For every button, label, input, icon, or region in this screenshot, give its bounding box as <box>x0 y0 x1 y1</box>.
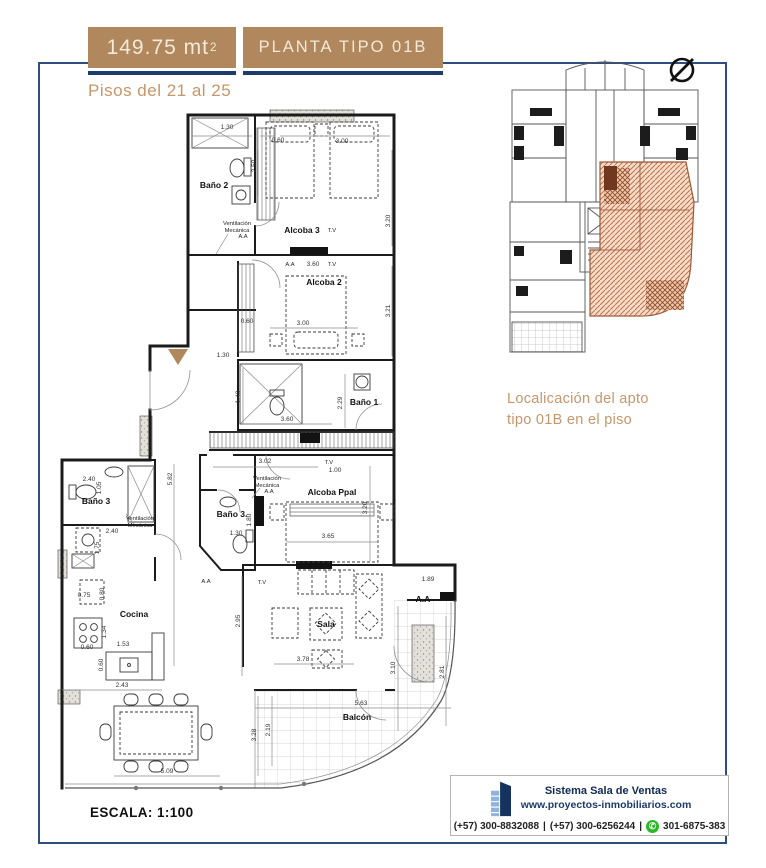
dim: 1.05 <box>96 481 103 494</box>
dim: 2.19 <box>265 723 272 736</box>
scale-label: ESCALA: 1:100 <box>90 805 193 820</box>
contact-box: Sistema Sala de Ventas www.proyectos-inm… <box>450 775 729 836</box>
plan-type-underline <box>243 71 443 75</box>
aa-tag: A.A <box>201 579 210 585</box>
phone-2: (+57) 300-6256244 <box>550 821 635 832</box>
room-label-bano3-izq: Baño 3 <box>82 496 111 506</box>
dim: 3.20 <box>385 214 392 227</box>
dim: 3.10 <box>390 661 397 674</box>
north-icon <box>671 59 693 81</box>
room-label-bano1: Baño 1 <box>350 397 379 407</box>
key-plan <box>500 50 715 360</box>
aa-tag: A.A <box>264 489 273 495</box>
dim: 3.21 <box>385 304 392 317</box>
tv-tag: T.V <box>328 228 337 234</box>
floor-plan: 1.30 2.50 0.60 3.00 3.20 3.60 3.21 0.60 … <box>56 106 466 806</box>
plan-type-label: PLANTA TIPO 01B <box>259 38 428 57</box>
dim: 3.60 <box>281 416 294 423</box>
dim: 2.40 <box>106 528 119 535</box>
vent-notes: Ventilación Mecánica Ventilación Mecánic… <box>126 221 281 529</box>
dim: 0.60 <box>272 137 285 144</box>
dim: 1.30 <box>217 352 230 359</box>
area-underline <box>88 71 236 75</box>
frame-top-left <box>38 62 88 64</box>
caption-line1: Localicación del apto <box>507 389 649 410</box>
room-label-balcon: Balcón <box>343 712 371 722</box>
phone-1: (+57) 300-8832088 <box>454 821 539 832</box>
company-logo-icon <box>488 778 514 818</box>
website-url: www.proyectos-inmobiliarios.com <box>521 798 692 812</box>
phone-line: (+57) 300-8832088 | (+57) 300-6256244 | … <box>454 820 726 833</box>
area-badge: 149.75 mt2 <box>88 27 236 68</box>
dim: 1.75 <box>94 541 101 554</box>
dim: 2.29 <box>337 396 344 409</box>
brand-name: Sistema Sala de Ventas <box>545 784 667 798</box>
dim: 3.65 <box>322 533 335 540</box>
dim: 1.34 <box>101 625 108 638</box>
dim: 1.40 <box>235 390 242 403</box>
dim: 0.80 <box>99 587 106 600</box>
vent-note: Mecánica <box>255 483 281 489</box>
room-label-alcoba2: Alcoba 2 <box>306 277 342 287</box>
dim: 3.28 <box>251 728 258 741</box>
door-arcs <box>150 202 430 720</box>
dim: 2.95 <box>235 614 242 627</box>
dim: 3.00 <box>336 138 349 145</box>
dim: 2.40 <box>83 476 96 483</box>
room-label-bano3-mid: Baño 3. <box>217 509 248 519</box>
dim: 3.78 <box>297 656 310 663</box>
dim: 1.89 <box>422 576 435 583</box>
floor-plan-svg: 1.30 2.50 0.60 3.00 3.20 3.60 3.21 0.60 … <box>56 106 466 806</box>
dim: 2.43 <box>116 682 129 689</box>
aa-tag: A.A <box>285 262 294 268</box>
area-value: 149.75 mt <box>107 36 209 60</box>
room-label-cocina: Cocina <box>120 609 149 619</box>
dining-set <box>100 694 212 772</box>
key-plan-caption: Localicación del apto tipo 01B en el pis… <box>507 389 649 431</box>
dim: 3.20 <box>362 501 369 514</box>
floors-label: Pisos del 21 al 25 <box>88 81 231 101</box>
dim: 0.60 <box>81 644 94 651</box>
caption-line2: tipo 01B en el piso <box>507 410 649 431</box>
dim: 0.60 <box>241 318 254 325</box>
dim: 3.00 <box>297 320 310 327</box>
dim: 5.09 <box>161 768 174 775</box>
whatsapp-icon: ✆ <box>646 820 659 833</box>
vent-note: Mecánica <box>128 523 154 529</box>
plan-type-badge: PLANTA TIPO 01B <box>243 27 443 68</box>
dim: 3.60 <box>307 261 320 268</box>
room-label-alcoba-ppal: Alcoba Ppal <box>308 487 357 497</box>
flyer-page: 149.75 mt2 PLANTA TIPO 01B Pisos del 21 … <box>0 0 766 868</box>
dim: 1.30 <box>230 530 243 537</box>
separator: | <box>543 821 546 832</box>
room-label-alcoba3: Alcoba 3 <box>284 225 320 235</box>
dim: 2.50 <box>251 159 258 172</box>
frame-right <box>725 62 727 844</box>
aa-tag: A.A <box>238 234 247 240</box>
entrance-marker <box>168 349 188 365</box>
dim: 1.00 <box>329 467 342 474</box>
vent-note: Mecánica <box>225 228 251 234</box>
dim: 1.53 <box>117 641 130 648</box>
dim: 0.60 <box>98 658 105 671</box>
room-label-aa: A.A <box>416 594 431 604</box>
wall-columns <box>58 110 434 704</box>
vent-note: Ventilación <box>253 476 281 482</box>
room-label-bano2: Baño 2 <box>200 180 229 190</box>
tv-tag: T.V <box>325 460 334 466</box>
dim: 0.75 <box>78 592 91 599</box>
separator: | <box>639 821 642 832</box>
dim: 5.63 <box>355 700 368 707</box>
key-plan-highlight <box>590 162 694 316</box>
vent-note: Ventilación <box>126 516 154 522</box>
phone-3: 301-6875-383 <box>663 821 725 832</box>
vent-note: Ventilación <box>223 221 251 227</box>
dim: 3.02 <box>259 458 272 465</box>
dim: 2.81 <box>439 665 446 678</box>
frame-bottom <box>38 842 727 844</box>
tv-tag: T.V <box>328 262 337 268</box>
tv-tag: T.V <box>258 580 267 586</box>
frame-left <box>38 62 40 844</box>
duct-boxes <box>255 247 455 600</box>
room-label-sala: Sala <box>317 619 335 629</box>
dim: 1.30 <box>221 124 234 131</box>
dim: 5.82 <box>167 472 174 485</box>
key-plan-svg <box>500 50 715 360</box>
area-exponent: 2 <box>210 42 217 54</box>
